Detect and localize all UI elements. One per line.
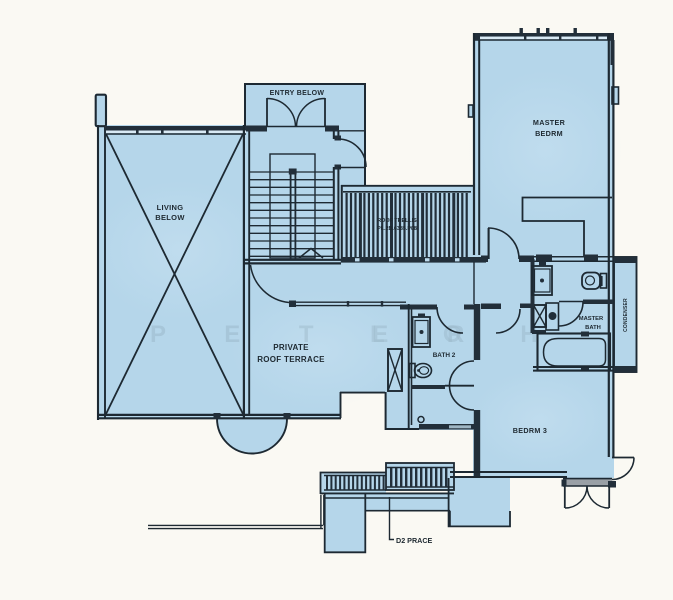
svg-text:BEDRM 3: BEDRM 3 xyxy=(513,426,547,435)
svg-text:CONDENSER: CONDENSER xyxy=(623,298,629,332)
svg-text:MASTER: MASTER xyxy=(533,118,566,127)
svg-text:ENTRY BELOW: ENTRY BELOW xyxy=(270,90,325,97)
svg-text:PRIVATE: PRIVATE xyxy=(273,343,309,352)
svg-text:LIVING: LIVING xyxy=(157,203,184,212)
svg-text:ROOF TRELLIS: ROOF TRELLIS xyxy=(377,218,417,224)
svg-text:MASTER: MASTER xyxy=(579,316,604,322)
svg-text:D2 PRACE: D2 PRACE xyxy=(396,536,433,545)
svg-text:BEDRM: BEDRM xyxy=(535,129,563,138)
svg-text:ROOF TERRACE: ROOF TERRACE xyxy=(257,355,325,364)
svg-text:BELOW: BELOW xyxy=(155,213,185,222)
svg-text:BATH 2: BATH 2 xyxy=(433,352,456,359)
svg-text:BATH: BATH xyxy=(585,325,601,331)
svg-text:PL.2B.6385.P08: PL.2B.6385.P08 xyxy=(377,226,417,232)
